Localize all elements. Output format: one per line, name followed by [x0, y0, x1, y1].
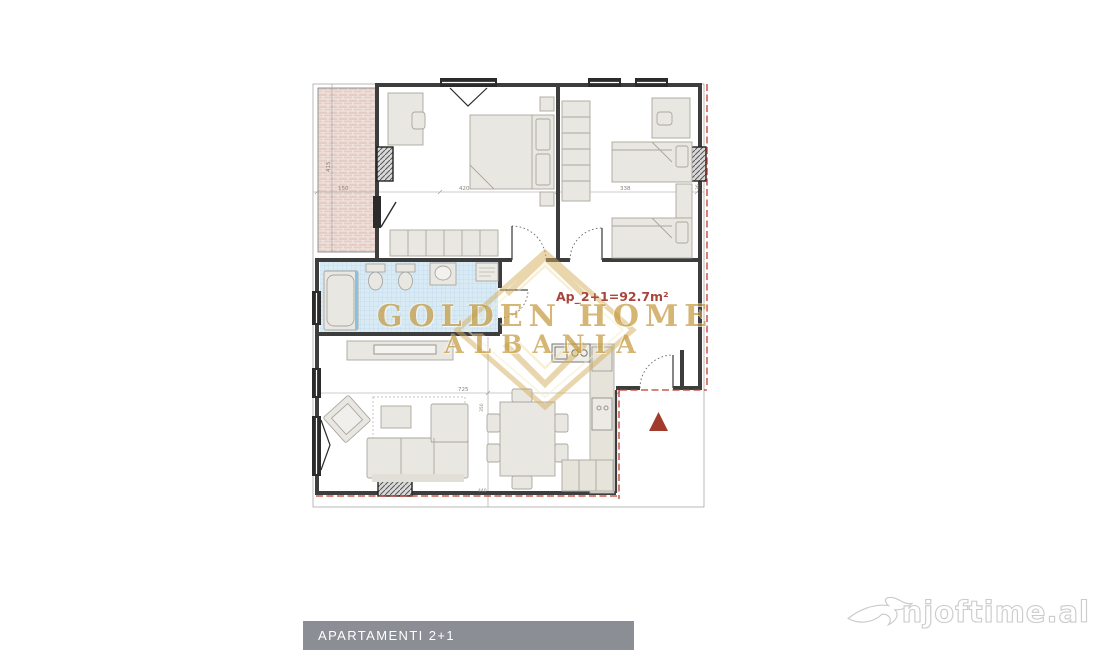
dim-balcony-width: 150: [338, 186, 349, 192]
pillow: [676, 222, 688, 243]
window-bedroom2-left-icon: [588, 78, 621, 87]
window-bedroom2-right-icon: [635, 78, 668, 87]
door-bathroom: [500, 290, 528, 318]
door-entry: [640, 355, 673, 388]
sink: [430, 263, 456, 285]
tv: [374, 345, 436, 354]
washing-machine: [476, 263, 498, 281]
door-bedroom2: [570, 228, 602, 260]
bedroom1: [388, 93, 554, 256]
pillow: [676, 146, 688, 167]
pillow: [536, 119, 550, 150]
dim-living-height: 350: [479, 403, 485, 412]
dim-bedroom1-width: 420: [459, 186, 470, 192]
coffee-table: [381, 406, 411, 428]
dim-balcony-height: 415: [326, 161, 332, 172]
banner-label: APARTAMENTI 2+1: [303, 628, 455, 643]
chair: [487, 444, 500, 462]
living-room: [323, 341, 468, 482]
shelf: [676, 184, 692, 218]
chair: [487, 414, 500, 432]
window-living-lower-icon: [312, 416, 330, 476]
chair: [555, 414, 568, 432]
area-label: Ap_2+1=92.7m²: [556, 289, 669, 305]
pillow: [536, 154, 550, 185]
dim-bedroom2-width: 338: [620, 186, 631, 192]
brand-name: njoftime.al: [902, 595, 1090, 629]
dim-bottom-width: 440: [478, 488, 487, 494]
chair-bedroom2: [657, 112, 672, 125]
window-living-upper-icon: [312, 368, 321, 398]
dining-area: [487, 389, 568, 489]
floor-plan: Ap_2+1=92.7m² 150 420 338 36 415 725 350…: [305, 68, 710, 518]
njoftime-watermark: njoftime.al: [844, 595, 1090, 629]
entrance-marker-icon: [649, 412, 668, 431]
nightstand: [540, 97, 554, 111]
nightstand: [540, 192, 554, 206]
wardrobe-bedroom2: [562, 101, 590, 201]
chair: [555, 444, 568, 462]
fridge: [592, 398, 612, 430]
listing-banner: APARTAMENTI 2+1: [303, 621, 634, 650]
balcony-door-icon: [373, 196, 396, 228]
listing-image: Ap_2+1=92.7m² 150 420 338 36 415 725 350…: [0, 0, 1100, 650]
chair: [512, 476, 532, 489]
bedroom2: [562, 98, 692, 258]
dim-right-side: 36: [695, 184, 701, 190]
armchair: [323, 395, 371, 443]
window-bedroom1-icon: [440, 78, 497, 106]
dining-table: [500, 402, 555, 476]
column-left: [377, 147, 393, 181]
window-bathroom-icon: [312, 291, 321, 325]
dim-living-width: 725: [458, 387, 469, 393]
bathtub: [324, 271, 358, 330]
kitchen-cabinet: [562, 460, 613, 491]
chair-bedroom1: [412, 112, 425, 129]
column-bottom: [378, 481, 412, 496]
